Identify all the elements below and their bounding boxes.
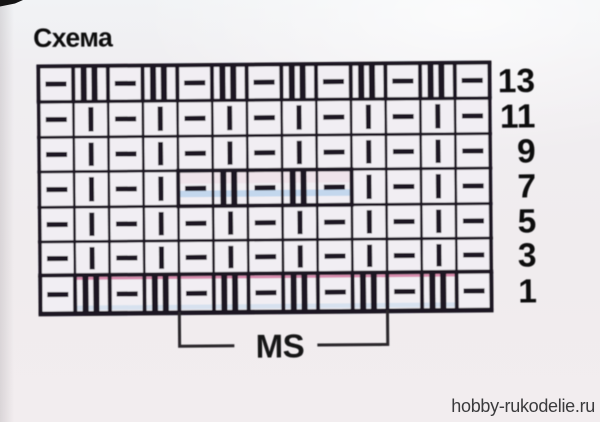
svg-text:Схема: Схема (33, 22, 113, 53)
svg-text:MS: MS (255, 327, 304, 364)
svg-text:13: 13 (498, 63, 536, 100)
svg-text:hobby-rukodelie.ru: hobby-rukodelie.ru (451, 396, 595, 416)
svg-text:9: 9 (517, 133, 536, 170)
svg-text:11: 11 (500, 98, 536, 135)
svg-text:5: 5 (517, 203, 536, 240)
svg-text:1: 1 (518, 273, 537, 310)
svg-text:3: 3 (518, 237, 537, 274)
svg-text:7: 7 (517, 168, 536, 205)
